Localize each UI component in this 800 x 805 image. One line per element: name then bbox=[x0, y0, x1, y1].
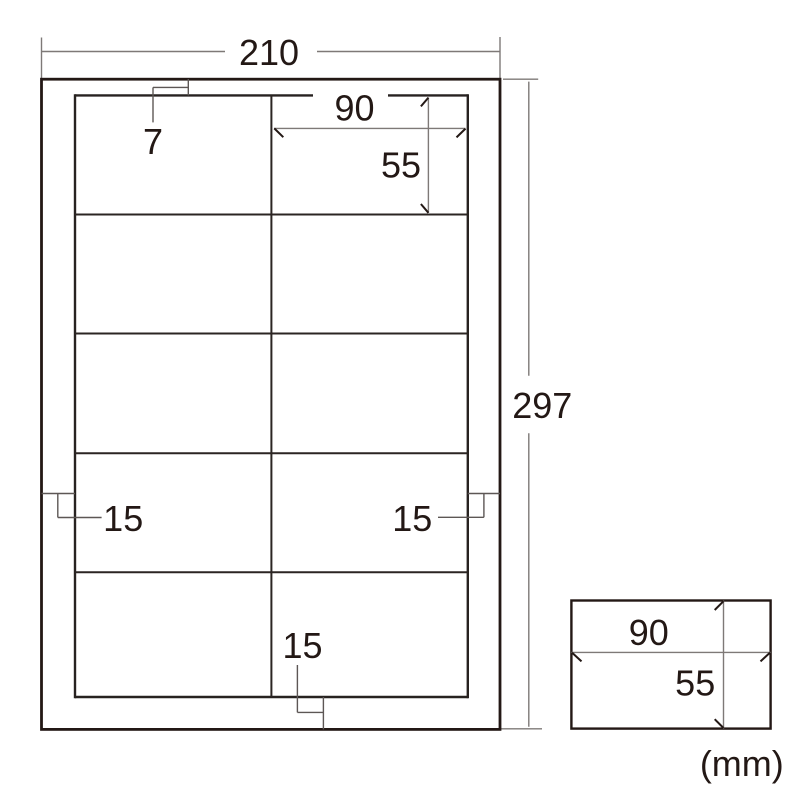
svg-text:90: 90 bbox=[334, 88, 374, 129]
svg-text:15: 15 bbox=[103, 498, 143, 539]
svg-text:55: 55 bbox=[381, 145, 421, 186]
svg-text:7: 7 bbox=[143, 121, 163, 162]
svg-text:15: 15 bbox=[392, 498, 432, 539]
svg-text:297: 297 bbox=[512, 385, 572, 426]
svg-text:15: 15 bbox=[282, 625, 322, 666]
svg-text:55: 55 bbox=[675, 663, 715, 704]
svg-text:210: 210 bbox=[239, 32, 299, 73]
svg-text:(mm): (mm) bbox=[700, 743, 784, 784]
svg-text:90: 90 bbox=[629, 612, 669, 653]
